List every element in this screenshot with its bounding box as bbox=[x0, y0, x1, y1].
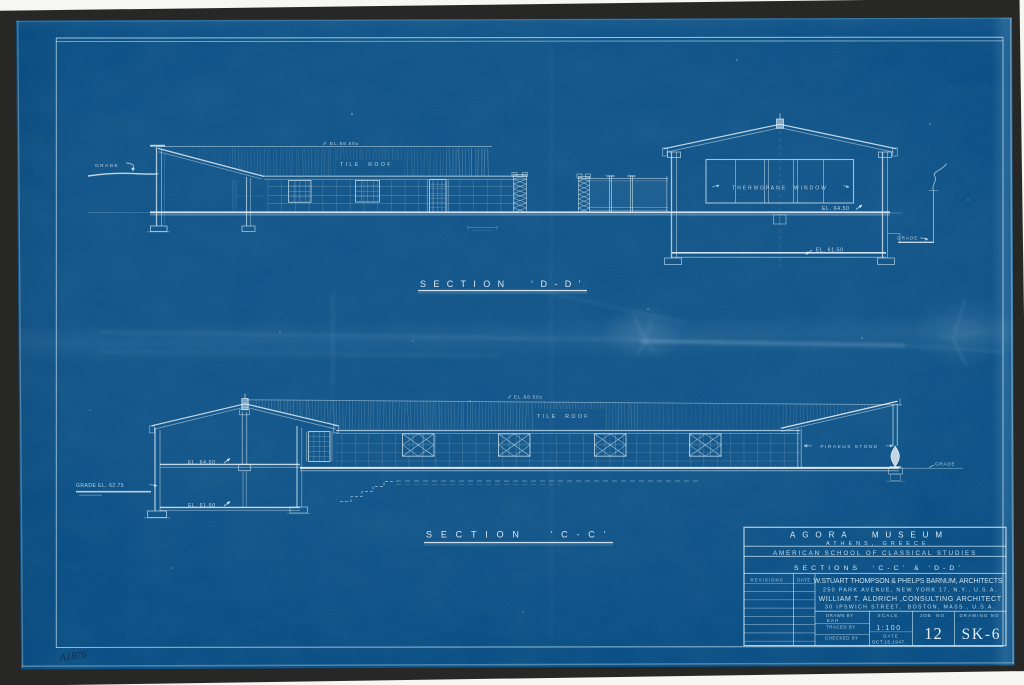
svg-text:EL.68.50±: EL.68.50± bbox=[514, 395, 543, 401]
svg-text:GRADE EL. 62.75: GRADE EL. 62.75 bbox=[76, 483, 124, 489]
svg-text:GRADE: GRADE bbox=[935, 462, 955, 467]
svg-text:JOB NO.: JOB NO. bbox=[920, 613, 948, 618]
svg-text:DATE: DATE bbox=[797, 578, 811, 583]
svg-text:AGORA MUSEUM: AGORA MUSEUM bbox=[790, 531, 948, 540]
svg-text:EAH: EAH bbox=[827, 618, 839, 623]
svg-text:12: 12 bbox=[924, 624, 943, 643]
svg-text:30 IPSWICH STREET, BOSTON, MA: 30 IPSWICH STREET, BOSTON, MASS., U.S.A. bbox=[825, 604, 995, 610]
svg-text:WILLIAM T. ALDRICH ,CONSULTING: WILLIAM T. ALDRICH ,CONSULTING ARCHITECT bbox=[819, 594, 1002, 603]
svg-text:1:100: 1:100 bbox=[876, 625, 902, 632]
svg-text:EL. 64.50: EL. 64.50 bbox=[188, 460, 216, 466]
svg-text:AMERICAN SCHOOL OF CLASSICAL S: AMERICAN SCHOOL OF CLASSICAL STUDIES bbox=[773, 550, 977, 557]
svg-text:EL. 61.50: EL. 61.50 bbox=[816, 248, 844, 254]
svg-text:OCT.15,1947.: OCT.15,1947. bbox=[872, 640, 906, 646]
svg-text:TILE ROOF: TILE ROOF bbox=[537, 414, 590, 420]
svg-text:DATE: DATE bbox=[883, 633, 898, 638]
svg-text:TRACED BY: TRACED BY bbox=[826, 625, 856, 630]
svg-text:GRADE: GRADE bbox=[95, 163, 119, 169]
svg-text:EL.68.50±: EL.68.50± bbox=[330, 141, 359, 147]
svg-text:THERMOPANE WINDOW: THERMOPANE WINDOW bbox=[732, 186, 828, 192]
svg-text:EL. 61.50: EL. 61.50 bbox=[188, 503, 216, 509]
svg-text:GRADE: GRADE bbox=[897, 236, 918, 241]
svg-text:PIRAEUS STONE: PIRAEUS STONE bbox=[820, 444, 878, 450]
svg-text:W.STUART THOMPSON & PHELPS BAR: W.STUART THOMPSON & PHELPS BARNUM, ARCHI… bbox=[814, 578, 1003, 585]
svg-text:SK-6: SK-6 bbox=[962, 626, 1000, 643]
svg-text:CHECKED BY: CHECKED BY bbox=[825, 636, 859, 641]
svg-text:DRAWING NO.: DRAWING NO. bbox=[960, 613, 1002, 618]
svg-text:SECTIONS ‘C-C’ & ‘D-D’: SECTIONS ‘C-C’ & ‘D-D’ bbox=[794, 565, 964, 572]
svg-text:SCALE: SCALE bbox=[877, 613, 898, 618]
svg-text:TILE ROOF: TILE ROOF bbox=[340, 162, 393, 168]
svg-text:EL. 64.50: EL. 64.50 bbox=[822, 206, 850, 212]
svg-text:250 PARK AVENUE, NEW YORK 17,: 250 PARK AVENUE, NEW YORK 17, N.Y., U.S.… bbox=[823, 587, 997, 593]
svg-text:REVISIONS: REVISIONS bbox=[751, 578, 784, 583]
